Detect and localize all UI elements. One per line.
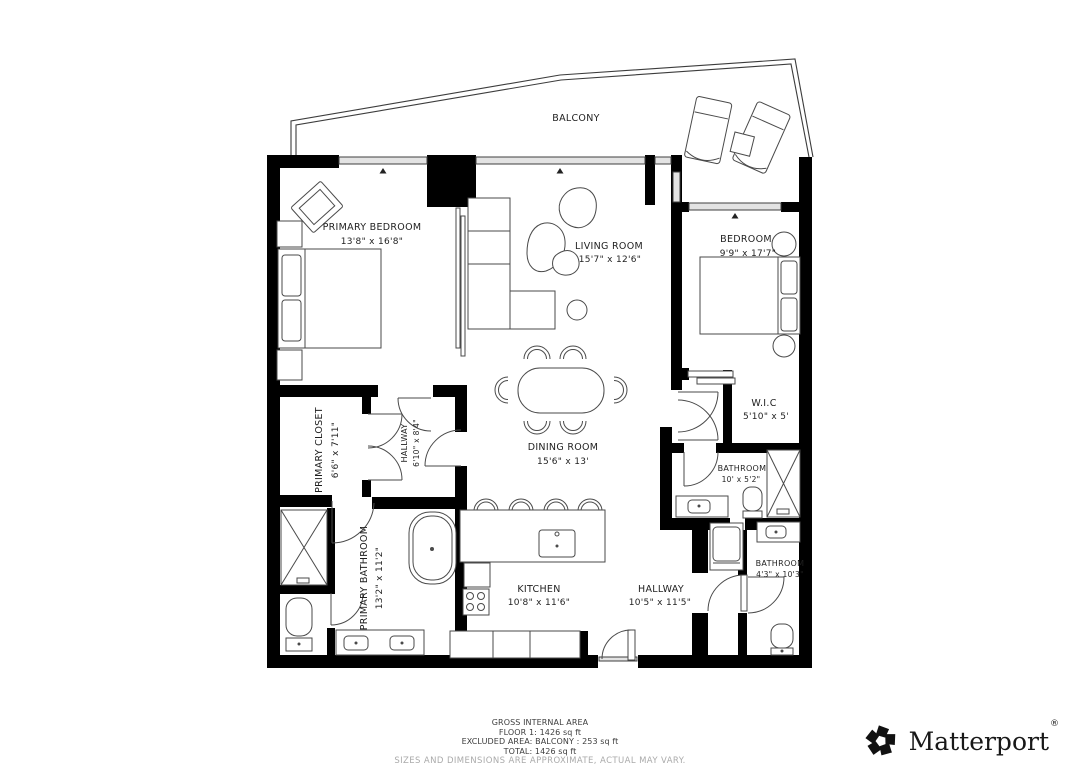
shower [281, 510, 327, 585]
label-hallway-main: HALLWAY [638, 584, 684, 595]
bar-stool [474, 499, 498, 511]
dining-chair [560, 421, 586, 434]
balcony-side-table [730, 132, 754, 156]
refrigerator [464, 563, 490, 587]
kitchen-counter [450, 631, 580, 658]
dims-hallway-primary: 6'10" x 8'4" [412, 419, 421, 467]
dining-chair [495, 377, 508, 403]
door-bedroom-double [678, 392, 718, 440]
dims-dining-room: 15'6" x 13' [537, 457, 589, 467]
dims-living-room: 15'7" x 12'6" [579, 255, 642, 265]
matterport-branding: Matterport® [862, 722, 1058, 760]
vanity [676, 496, 728, 517]
floor-plan-page: BALCONY PRIMARY BEDROOM 13'8" x 16'8" LI… [0, 0, 1080, 764]
shower [767, 450, 800, 517]
floor-plan-drawing: BALCONY PRIMARY BEDROOM 13'8" x 16'8" LI… [0, 0, 1080, 764]
bed [700, 257, 800, 334]
label-wic: W.I.C [751, 398, 776, 409]
dims-bathroom-lower: 4'3" x 10'3" [756, 570, 804, 579]
dims-bedroom: 9'9" x 17'7" [720, 249, 777, 259]
label-bathroom-lower: BATHROOM [756, 559, 805, 568]
window-marker [380, 168, 387, 174]
label-primary-closet: PRIMARY CLOSET [314, 407, 325, 493]
dining-chair [614, 377, 627, 403]
washer-closet [710, 523, 743, 570]
double-vanity [336, 630, 424, 655]
dims-primary-bathroom: 13'2" x 11'2" [375, 547, 385, 610]
door-hallway-dining [425, 430, 461, 466]
registered-mark: ® [1050, 719, 1059, 729]
primary-bedroom-furniture [277, 181, 381, 380]
matterport-logo-text: Matterport [909, 727, 1049, 756]
dims-primary-bedroom: 13'8" x 16'8" [341, 237, 404, 247]
dims-wic: 5'10" x 5' [743, 412, 789, 422]
label-kitchen: KITCHEN [517, 584, 560, 595]
toilet [743, 487, 762, 518]
door-bathroom-lower [748, 577, 784, 613]
kitchen-island [460, 510, 605, 562]
bathtub [409, 512, 456, 584]
nightstand [277, 221, 302, 247]
bar-stool [509, 499, 533, 511]
door-primary-closet-double [368, 414, 402, 480]
door-corridor [708, 575, 747, 611]
bar-stool [544, 499, 568, 511]
window-marker [557, 168, 564, 174]
dining-table [518, 368, 604, 413]
label-balcony: BALCONY [552, 113, 599, 124]
primary-bed [278, 249, 381, 348]
door-bathroom-upper [684, 452, 718, 486]
nightstand [277, 350, 302, 380]
living-room-furniture [468, 188, 596, 329]
label-living-room: LIVING ROOM [575, 241, 643, 252]
dining-chair [524, 421, 550, 434]
toilet [286, 598, 312, 651]
matterport-logo-icon [862, 722, 900, 760]
dining-chair [524, 346, 550, 359]
label-bathroom-upper: BATHROOM [718, 464, 767, 473]
door-entry [602, 630, 635, 660]
label-primary-bedroom: PRIMARY BEDROOM [323, 222, 422, 233]
dims-bathroom-upper: 10' x 5'2" [722, 475, 761, 484]
bar-stool [578, 499, 602, 511]
dims-primary-closet: 6'6" x 7'11" [331, 422, 341, 479]
dims-kitchen: 10'8" x 11'6" [508, 598, 571, 608]
vanity [757, 522, 800, 542]
label-bedroom: BEDROOM [720, 234, 772, 245]
side-table [567, 300, 587, 320]
label-dining-room: DINING ROOM [528, 442, 599, 453]
bathroom-lower-fixtures [757, 522, 800, 655]
window-marker [732, 213, 739, 219]
balcony-lounge-chair [684, 96, 732, 164]
dining-chair [560, 346, 586, 359]
label-primary-bathroom: PRIMARY BATHROOM [359, 526, 370, 630]
dims-hallway-main: 10'5" x 11'5" [629, 598, 692, 608]
toilet [771, 624, 793, 655]
round-side-table [773, 335, 795, 357]
dining-furniture [495, 346, 627, 434]
stove [463, 589, 489, 615]
island-sink [539, 530, 575, 557]
label-hallway-primary: HALLWAY [400, 424, 409, 463]
